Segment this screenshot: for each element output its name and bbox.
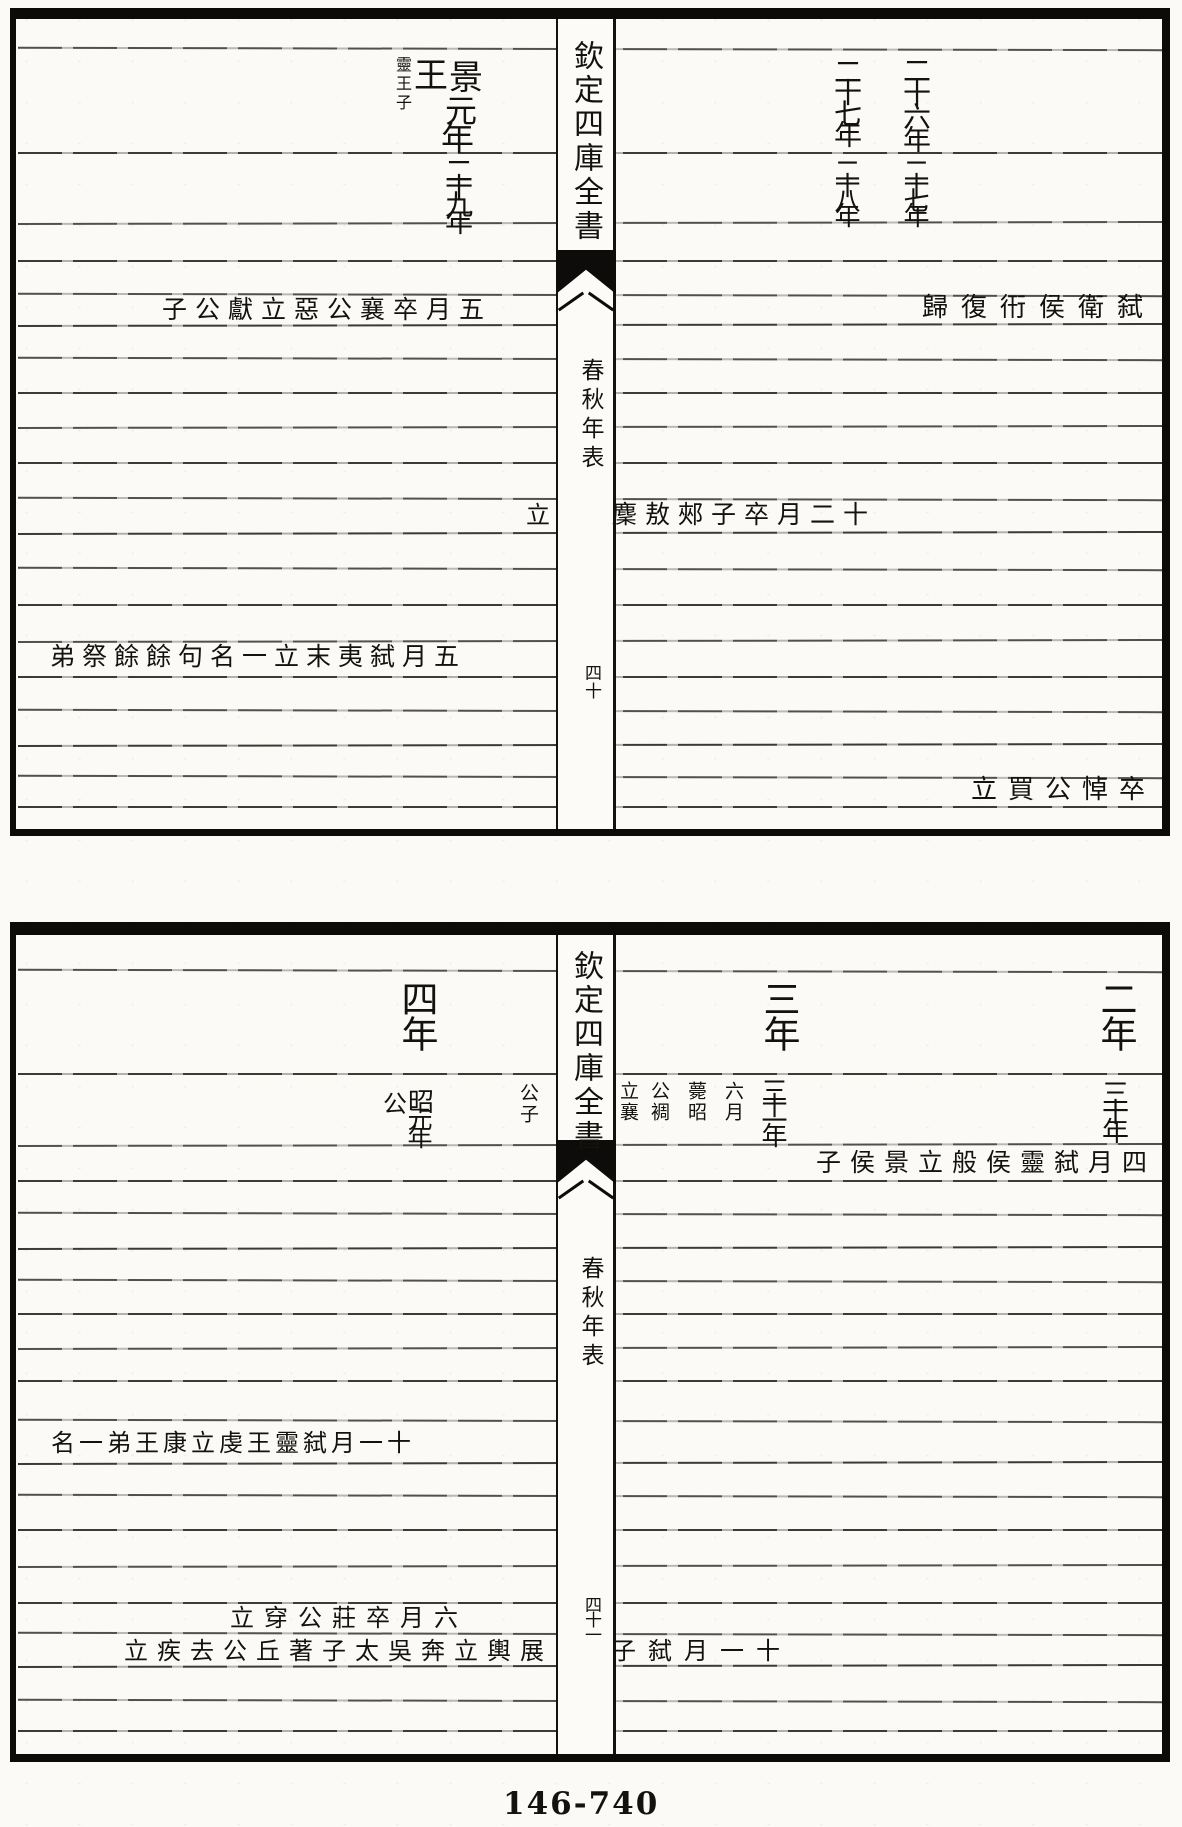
leaf2-spine-title: 欽定四庫全書 xyxy=(570,950,600,1154)
year-cell-row1-col1: 二十六年 xyxy=(901,56,929,148)
entry-zhu-succession: 六月卒莊公穿立 xyxy=(230,1605,468,1631)
year-cell-two: 二年 xyxy=(1097,980,1134,1050)
lu-year-under-three: 三十一年 xyxy=(759,1077,785,1137)
entry-wei-return-right: 弑衛侯衎復歸 xyxy=(922,294,1156,323)
leaf2-spine-section-title: 春秋年表 xyxy=(578,1256,601,1372)
entry-cai-succession: 四月弑靈侯般立景侯子 xyxy=(816,1149,1156,1177)
lu-note-gongzi: 公子 xyxy=(518,1083,537,1125)
entry-chu-li-left: 立 xyxy=(526,502,550,528)
lu-year-cell: 二十九年 xyxy=(443,156,471,224)
page-footer-number: 146-740 xyxy=(503,1786,659,1822)
leaf1-folio-number: 四十 xyxy=(582,664,599,700)
lu-note-col-2: 薨昭 xyxy=(686,1081,705,1123)
entry-ju-succession-left: 展輿立奔吳太子著丘公去疾立 xyxy=(124,1638,553,1664)
leaf1-spine-title: 欽定四庫全書 xyxy=(570,40,600,244)
lu-note-col-4: 立襄 xyxy=(618,1081,637,1123)
entry-wei-succession-left: 五月卒襄公惡立獻公子 xyxy=(162,296,492,324)
lu-note-col-1: 六月 xyxy=(723,1081,742,1123)
year-cell-row2-col1: 二十七年 xyxy=(901,157,927,217)
lu-note-col-3: 公裯 xyxy=(649,1081,668,1123)
zhou-king-char-nian: 年 xyxy=(441,112,474,160)
year-cell-three: 三年 xyxy=(760,980,797,1050)
entry-chu-succession-right: 十二月卒子郟敖麇 xyxy=(612,501,876,529)
year-cell-four: 四年 xyxy=(398,980,435,1050)
entry-ju-succession-right: 十一月弑子 xyxy=(612,1638,792,1664)
leaf1-spine-section-title: 春秋年表 xyxy=(578,358,601,474)
year-cell-row2-col2: 二十八年 xyxy=(832,157,858,217)
entry-wu-succession-left: 五月弑夷末立一名句餘餘祭弟 xyxy=(50,643,466,671)
zhou-king-small-note: 靈王子 xyxy=(394,56,410,113)
entry-chu-lingwang: 十一月弑靈王虔立康王弟一名 xyxy=(51,1430,415,1456)
lu-year-under-two: 三十年 xyxy=(1099,1079,1126,1136)
leaf2-folio-number: 四十一 xyxy=(582,1596,599,1641)
year-cell-row1-col2: 二十七年 xyxy=(832,57,860,141)
lu-era-yuannian: 元年 xyxy=(406,1106,431,1142)
entry-xu-succession-right: 卒悼公買立 xyxy=(971,776,1156,805)
scanned-book-page: { "page": { "footer_number": "146-740" }… xyxy=(0,0,1182,1827)
zhou-king-char-wang: 王 xyxy=(414,48,448,97)
